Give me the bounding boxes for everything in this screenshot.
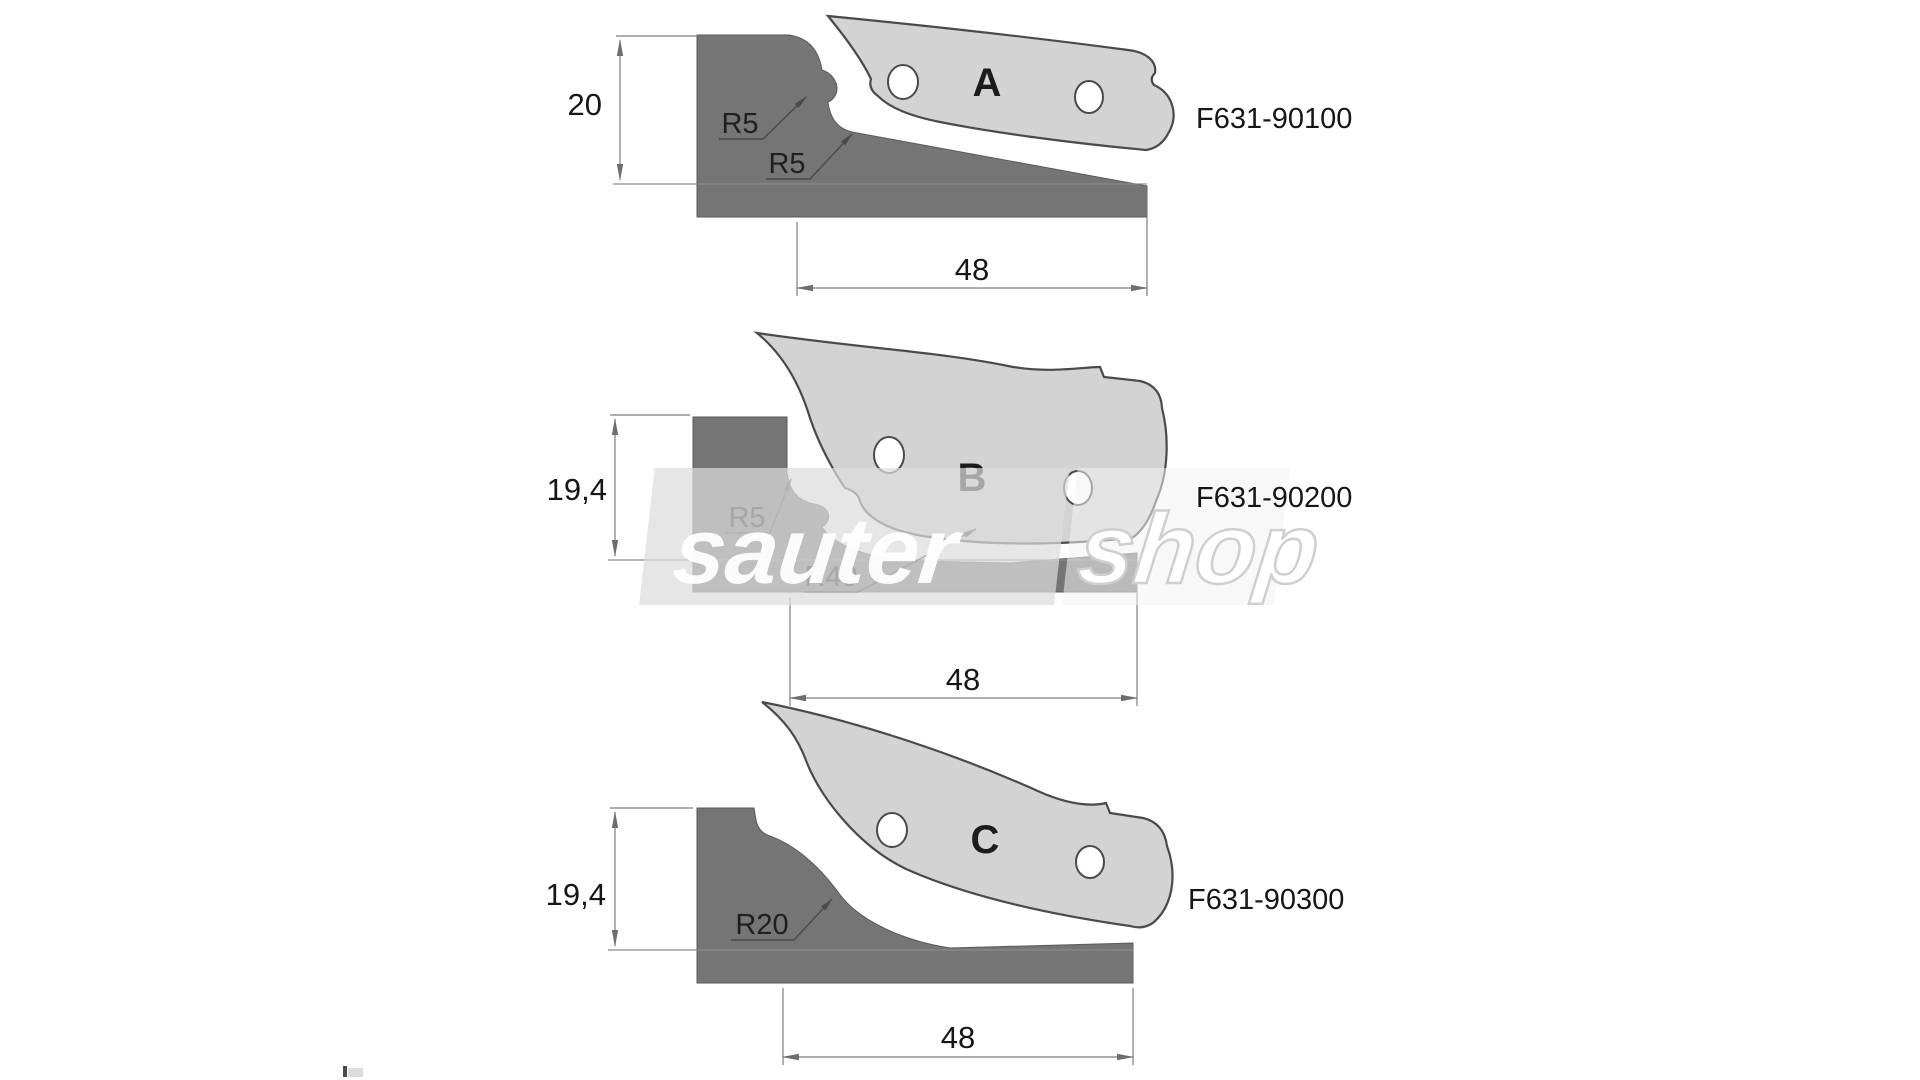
dim-width-c: 48 [941,1020,975,1055]
product-code-a: F631-90100 [1196,103,1352,135]
product-code-b: F631-90200 [1196,482,1352,514]
figure-c: C 19,4 R20 48 [546,702,1173,1065]
dim-height-a: 20 [568,87,602,122]
blade-c-hole-1 [877,813,907,847]
dim-height-b: 19,4 [547,472,607,507]
watermark-text-sauter: sauter [668,498,966,603]
dim-width-b: 48 [946,662,980,697]
radius-label-a1: R5 [721,108,758,140]
blade-c-hole-2 [1076,846,1104,878]
blade-a-letter: A [973,61,1002,105]
blade-b-hole-1 [874,437,904,473]
blade-a-hole-1 [888,65,918,99]
figure-a: A 20 R5 R5 48 [568,16,1174,296]
scan-artifact [343,1066,363,1077]
dim-width-a: 48 [955,252,989,287]
radius-label-a2: R5 [768,148,805,180]
dim-height-c: 19,4 [546,877,606,912]
product-code-c: F631-90300 [1188,884,1344,916]
drawing-canvas: A 20 R5 R5 48 B 19,4 R5 R40 [0,0,1920,1080]
blade-a-hole-2 [1075,81,1103,113]
profile-knife-drawing: A 20 R5 R5 48 B 19,4 R5 R40 [0,0,1920,1080]
radius-label-c1: R20 [735,909,788,941]
blade-c-letter: C [971,818,1000,862]
